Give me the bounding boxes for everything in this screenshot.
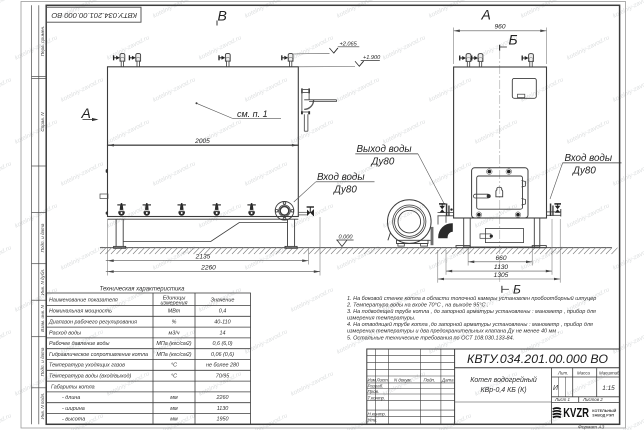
svg-text:0,6 (6,0): 0,6 (6,0)	[212, 341, 232, 347]
svg-text:kotelniy-zavod.ru: kotelniy-zavod.ru	[244, 160, 289, 188]
svg-text:- ширина: - ширина	[62, 406, 85, 412]
svg-text:Масса: Масса	[577, 371, 591, 376]
svg-text:kotelniy-zavod.ru: kotelniy-zavod.ru	[336, 76, 381, 104]
svg-text:Ду80: Ду80	[333, 185, 357, 196]
svg-text:Лист: Лист	[376, 377, 389, 382]
svg-text:- высота: - высота	[62, 417, 85, 423]
svg-text:kotelniy-zavod.ru: kotelniy-zavod.ru	[612, 0, 644, 20]
svg-text:измерения температуры.: измерения температуры.	[347, 315, 415, 321]
svg-text:5. Остальные технические треб: 5. Остальные технические требования по О…	[347, 335, 514, 341]
svg-text:Выход воды: Выход воды	[357, 144, 413, 155]
svg-text:%: %	[172, 320, 177, 326]
svg-text:м3/ч: м3/ч	[169, 330, 180, 336]
svg-text:kotelniy-zavod.ru: kotelniy-zavod.ru	[612, 76, 644, 104]
svg-text:Температура уходящих газов: Температура уходящих газов	[49, 363, 125, 369]
svg-text:kotelniy-zavod.ru: kotelniy-zavod.ru	[0, 412, 13, 430]
svg-text:kotelniy-zavod.ru: kotelniy-zavod.ru	[244, 0, 289, 20]
svg-text:Вход воды: Вход воды	[317, 172, 365, 183]
svg-text:kotelniy-zavod.ru: kotelniy-zavod.ru	[520, 412, 565, 430]
svg-text:КВр-0,4 КБ (К): КВр-0,4 КБ (К)	[480, 387, 526, 394]
svg-text:kotelniy-zavod.ru: kotelniy-zavod.ru	[0, 244, 13, 272]
svg-text:kotelniy-zavod.ru: kotelniy-zavod.ru	[152, 0, 197, 20]
svg-text:Утв.: Утв.	[368, 418, 378, 423]
svg-text:kotelniy-zavod.ru: kotelniy-zavod.ru	[152, 244, 197, 272]
svg-text:И: И	[553, 385, 559, 392]
svg-text:kotelniy-zavod.ru: kotelniy-zavod.ru	[0, 328, 13, 356]
svg-text:Справ. N: Справ. N	[40, 112, 45, 132]
svg-text:kotelniy-zavod.ru: kotelniy-zavod.ru	[520, 76, 565, 104]
svg-text:Ду80: Ду80	[572, 166, 596, 177]
svg-text:Т.контр.: Т.контр.	[368, 396, 386, 401]
svg-text:1130: 1130	[217, 406, 229, 412]
svg-text:kotelniy-zavod.ru: kotelniy-zavod.ru	[474, 202, 519, 230]
svg-text:kotelniy-zavod.ru: kotelniy-zavod.ru	[428, 0, 473, 20]
svg-text:КВТУ.034.201.00.000 ВО: КВТУ.034.201.00.000 ВО	[51, 11, 137, 20]
svg-text:kotelniy-zavod.ru: kotelniy-zavod.ru	[612, 412, 644, 430]
svg-text:2260: 2260	[216, 395, 229, 401]
svg-text:Лит.: Лит.	[557, 371, 568, 376]
svg-text:kotelniy-zavod.ru: kotelniy-zavod.ru	[290, 370, 335, 398]
svg-text:Подп. и дата: Подп. и дата	[40, 347, 45, 376]
svg-text:Формат А3: Формат А3	[578, 424, 605, 430]
svg-text:Изм: Изм	[368, 377, 376, 382]
svg-text:°С: °С	[171, 363, 177, 369]
svg-text:kotelniy-zavod.ru: kotelniy-zavod.ru	[290, 118, 335, 146]
svg-text:kotelniy-zavod.ru: kotelniy-zavod.ru	[566, 202, 611, 230]
svg-text:МПа (кгс/см2): МПа (кгс/см2)	[156, 352, 191, 358]
svg-text:измерения температуры и два пр: измерения температуры и два предохраните…	[347, 328, 559, 334]
svg-text:kotelniy-zavod.ru: kotelniy-zavod.ru	[428, 160, 473, 188]
svg-text:Взам. инв. N: Взам. инв. N	[40, 304, 45, 331]
svg-text:измерения: измерения	[161, 301, 188, 307]
svg-text:40-110: 40-110	[214, 320, 230, 326]
svg-text:kotelniy-zavod.ru: kotelniy-zavod.ru	[428, 76, 473, 104]
svg-text:КВТУ.034.201.00.000 ВО: КВТУ.034.201.00.000 ВО	[467, 352, 608, 366]
svg-text:N докум.: N докум.	[394, 377, 412, 382]
svg-text:kotelniy-zavod.ru: kotelniy-zavod.ru	[106, 118, 151, 146]
svg-text:kotelniy-zavod.ru: kotelniy-zavod.ru	[428, 412, 473, 430]
svg-text:70/95: 70/95	[216, 374, 230, 380]
svg-text:А: А	[481, 7, 491, 23]
svg-text:kotelniy-zavod.ru: kotelniy-zavod.ru	[612, 328, 644, 356]
svg-text:kotelniy-zavod.ru: kotelniy-zavod.ru	[520, 160, 565, 188]
svg-text:Температура воды (вход/выход): Температура воды (вход/выход)	[49, 374, 132, 380]
svg-text:Техническая характеристика: Техническая характеристика	[100, 287, 186, 293]
svg-text:Котел водогрейный: Котел водогрейный	[470, 376, 537, 384]
svg-text:А: А	[81, 105, 91, 121]
svg-text:Перв. примен.: Перв. примен.	[40, 26, 45, 57]
svg-text:KVZR: KVZR	[563, 405, 589, 420]
svg-text:мм: мм	[170, 395, 178, 401]
svg-text:kotelniy-zavod.ru: kotelniy-zavod.ru	[290, 34, 335, 62]
svg-text:kotelniy-zavod.ru: kotelniy-zavod.ru	[198, 202, 243, 230]
svg-text:kotelniy-zavod.ru: kotelniy-zavod.ru	[106, 202, 151, 230]
svg-text:1:15: 1:15	[602, 385, 615, 392]
svg-text:kotelniy-zavod.ru: kotelniy-zavod.ru	[244, 76, 289, 104]
svg-text:Номинальная мощность: Номинальная мощность	[49, 309, 112, 315]
svg-text:Б: Б	[513, 283, 521, 297]
svg-text:Лист 1: Лист 1	[554, 397, 571, 402]
svg-text:Значение: Значение	[211, 298, 235, 304]
svg-text:Габариты котла: Габариты котла	[51, 384, 95, 390]
svg-text:kotelniy-zavod.ru: kotelniy-zavod.ru	[612, 160, 644, 188]
svg-text:kotelniy-zavod.ru: kotelniy-zavod.ru	[60, 244, 105, 272]
svg-text:1130: 1130	[494, 264, 509, 271]
svg-text:Вход воды: Вход воды	[565, 153, 613, 164]
svg-text:0,06 (0,6): 0,06 (0,6)	[211, 352, 234, 358]
svg-text:Расход воды: Расход воды	[49, 330, 81, 336]
svg-text:Наименование показателя: Наименование показателя	[49, 298, 118, 304]
svg-text:kotelniy-zavod.ru: kotelniy-zavod.ru	[60, 76, 105, 104]
svg-text:Масштаб: Масштаб	[599, 371, 620, 376]
svg-text:В: В	[218, 8, 227, 24]
svg-text:Разраб.: Разраб.	[368, 384, 384, 389]
svg-text:не более 280: не более 280	[206, 363, 239, 369]
svg-text:Диапазон рабочего регулирова: Диапазон рабочего регулирования	[48, 320, 137, 326]
svg-text:1950: 1950	[217, 417, 229, 423]
svg-text:ЗАВОД РЭП: ЗАВОД РЭП	[592, 413, 614, 417]
svg-text:960: 960	[494, 24, 505, 31]
svg-text:Дата: Дата	[441, 377, 454, 382]
svg-text:kotelniy-zavod.ru: kotelniy-zavod.ru	[382, 34, 427, 62]
svg-text:Инв. N подл.: Инв. N подл.	[40, 393, 45, 420]
svg-text:kotelniy-zavod.ru: kotelniy-zavod.ru	[474, 118, 519, 146]
svg-text:2. Температура воды на входе: 2. Температура воды на входе 70°С , на в…	[346, 302, 489, 308]
svg-text:kotelniy-zavod.ru: kotelniy-zavod.ru	[612, 244, 644, 272]
svg-text:14: 14	[220, 330, 226, 336]
svg-text:+2.065: +2.065	[340, 41, 358, 47]
svg-text:Н.контр.: Н.контр.	[368, 411, 387, 416]
svg-text:660: 660	[495, 255, 506, 262]
svg-text:1305: 1305	[494, 272, 509, 279]
svg-text:Б: Б	[509, 31, 518, 47]
svg-text:kotelniy-zavod.ru: kotelniy-zavod.ru	[566, 118, 611, 146]
svg-text:kotelniy-zavod.ru: kotelniy-zavod.ru	[0, 76, 13, 104]
svg-text:3. На подводящей трубе котла: 3. На подводящей трубе котла , до запорн…	[347, 308, 596, 315]
svg-text:kotelniy-zavod.ru: kotelniy-zavod.ru	[336, 0, 381, 20]
svg-text:kotelniy-zavod.ru: kotelniy-zavod.ru	[520, 0, 565, 20]
svg-text:kotelniy-zavod.ru: kotelniy-zavod.ru	[566, 34, 611, 62]
svg-text:kotelniy-zavod.ru: kotelniy-zavod.ru	[520, 244, 565, 272]
svg-text:Инв. N дубл.: Инв. N дубл.	[40, 269, 45, 296]
svg-text:kotelniy-zavod.ru: kotelniy-zavod.ru	[14, 118, 59, 146]
svg-text:°С: °С	[171, 374, 177, 380]
svg-text:kotelniy-zavod.ru: kotelniy-zavod.ru	[290, 286, 335, 314]
svg-text:- длина: - длина	[62, 395, 80, 401]
svg-text:Гидравлическое сопротивление: Гидравлическое сопротивление котла	[49, 352, 148, 358]
svg-text:+1.900: +1.900	[363, 55, 381, 61]
svg-text:kotelniy-zavod.ru: kotelniy-zavod.ru	[60, 160, 105, 188]
svg-text:1. На боковой стенке котла в: 1. На боковой стенке котла в области топ…	[347, 295, 596, 302]
svg-text:см. п. 1: см. п. 1	[237, 109, 268, 119]
svg-text:МВт: МВт	[168, 309, 181, 315]
svg-text:Ду80: Ду80	[371, 157, 395, 168]
svg-text:Рабочее давление воды: Рабочее давление воды	[49, 341, 109, 347]
svg-text:kotelniy-zavod.ru: kotelniy-zavod.ru	[14, 34, 59, 62]
svg-text:kotelniy-zavod.ru: kotelniy-zavod.ru	[152, 160, 197, 188]
svg-text:kotelniy-zavod.ru: kotelniy-zavod.ru	[290, 202, 335, 230]
svg-text:Подп. и дата: Подп. и дата	[40, 223, 45, 252]
svg-text:kotelniy-zavod.ru: kotelniy-zavod.ru	[382, 118, 427, 146]
svg-text:4. На отводящей трубе котла ,: 4. На отводящей трубе котла ,до запорной…	[347, 321, 593, 328]
svg-text:kotelniy-zavod.ru: kotelniy-zavod.ru	[0, 160, 13, 188]
svg-text:0,4: 0,4	[219, 309, 227, 315]
svg-text:МПа (кгс/см2): МПа (кгс/см2)	[156, 341, 191, 347]
svg-text:Листов 2: Листов 2	[582, 397, 603, 402]
svg-text:0.000: 0.000	[339, 235, 354, 241]
svg-text:2260: 2260	[200, 265, 216, 272]
svg-text:мм: мм	[170, 406, 178, 412]
svg-text:Пров.: Пров.	[368, 389, 380, 394]
svg-text:kotelniy-zavod.ru: kotelniy-zavod.ru	[14, 202, 59, 230]
svg-text:Подп.: Подп.	[424, 377, 436, 382]
svg-text:мм: мм	[170, 417, 178, 423]
svg-text:2005: 2005	[194, 138, 210, 145]
svg-text:2135: 2135	[195, 254, 211, 261]
svg-text:kotelniy-zavod.ru: kotelniy-zavod.ru	[0, 0, 13, 20]
svg-text:kotelniy-zavod.ru: kotelniy-zavod.ru	[244, 244, 289, 272]
svg-text:kotelniy-zavod.ru: kotelniy-zavod.ru	[428, 244, 473, 272]
svg-text:kotelniy-zavod.ru: kotelniy-zavod.ru	[152, 76, 197, 104]
svg-text:kotelniy-zavod.ru: kotelniy-zavod.ru	[106, 34, 151, 62]
